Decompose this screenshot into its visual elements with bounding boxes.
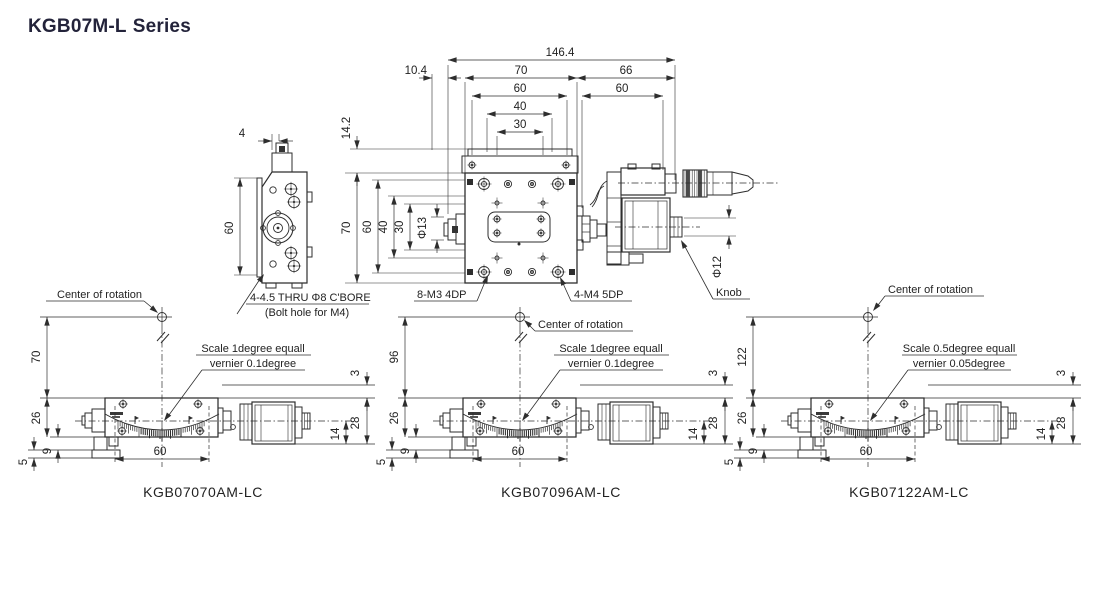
dim-arrow [44,317,49,326]
dim-arrow [1049,435,1054,444]
drawing-rect [607,172,621,264]
drawing-line [872,370,908,419]
dim-arrow [761,450,766,459]
dim-label: 28 [708,417,720,430]
screw-icon [828,403,830,405]
dim-arrow [407,204,412,213]
model-label: KGB07122AM-LC [849,484,969,500]
dim-label: 14.2 [341,117,353,139]
drawing-rect [929,411,937,430]
dim-label: Φ12 [712,256,724,278]
dim-label: 60 [514,83,527,95]
drawing-rect [266,283,276,288]
dim-arrow [31,458,36,467]
drawing-rect [686,170,689,197]
dim-arrow [413,428,418,437]
drawing-rect [443,413,450,428]
screw-icon [496,232,498,234]
goniometer-view-3: 12226953281460Center of rotationScale 0.… [724,284,1081,500]
gonio-drive-body [958,402,1001,444]
drawing-rect [92,409,105,432]
dim-label: 3 [708,370,720,376]
drawing-rect [625,201,667,249]
dim-arrow [701,435,706,444]
dim-label: 10.4 [405,65,428,77]
drawing-rect [82,416,85,425]
drawing-rect [279,146,285,152]
drawing-rect [240,404,252,440]
drawing-circle [518,243,521,246]
dim-arrow [726,236,731,245]
drawing-rect [109,437,118,446]
screw-icon [122,403,124,405]
dim-label: 9 [400,448,412,454]
dim-arrow [413,450,418,459]
drawing-rect [665,174,676,193]
dim-arrow [722,435,727,444]
dim-arrow [543,111,552,116]
drawing-rect [450,450,478,458]
dim-arrow [375,264,380,273]
drawing-rect [307,247,312,257]
dim-arrow [44,398,49,407]
catalog-drawing-page: KGB07M-LSeries 146.410.470666060403014.2… [0,0,1100,600]
dim-label: 122 [737,347,749,366]
dim-label: 70 [515,65,528,77]
callout-text: 4-4.5 THRU Φ8 C'BORE [250,292,371,304]
dim-arrow [558,93,567,98]
top-plan-view: 146.410.470666060403014.270604030Φ13Φ128… [341,47,778,301]
dim-arrow [389,441,394,450]
dim-arrow [448,57,457,62]
screw-icon [197,403,199,405]
dim-arrow [750,428,755,437]
dim-arrow [1070,376,1075,385]
drawing-rect [590,220,597,238]
dim-arrow [343,421,348,430]
scale-note: vernier 0.1degree [210,358,296,370]
tapped-hole-icon [531,183,532,184]
screw-icon [480,403,482,405]
logo-mark [470,416,478,418]
dim-arrow [364,435,369,444]
drawing-rect [85,413,92,428]
dim-arrow [654,93,663,98]
dim-label: 3 [1056,370,1068,376]
screw-icon [293,201,295,203]
dim-label: 26 [389,412,401,425]
scale-note: Scale 1degree equall [201,343,304,355]
dim-label: Φ13 [417,217,429,239]
callout-text: Knob [716,287,742,299]
drawing-rect [467,269,473,275]
drawing-rect [798,409,811,432]
screw-icon [479,430,481,432]
screw-icon [496,218,498,220]
drawing-rect [467,179,473,185]
screw-icon [565,164,567,166]
drawing-rect [788,416,791,425]
technical-drawing-canvas: 146.410.470666060403014.270604030Φ13Φ128… [0,0,1100,600]
dim-label: 60 [512,446,525,458]
screw-icon [905,430,907,432]
model-label: KGB07096AM-LC [501,484,621,500]
index-flag-icon [547,416,551,420]
goniometer-view-2: 9626953281460Center of rotationScale 1de… [376,307,733,500]
dim-arrow [666,57,675,62]
dim-label: 28 [350,417,362,430]
drawing-rect [798,450,826,458]
dim-arrow [1070,398,1075,407]
screw-icon [199,430,201,432]
index-flag-icon [895,416,899,420]
drawing-rect [576,408,581,433]
screw-icon [121,430,123,432]
gonio-drive-body [610,402,653,444]
drawing-rect [94,437,107,450]
drawing-rect [581,411,589,430]
platform-body [462,156,578,173]
drawing-circle [270,187,276,193]
dim-arrow [582,93,591,98]
drawing-rect [272,153,292,172]
drawing-line [524,370,560,419]
dim-arrow [263,138,272,143]
drawing-circle [270,261,276,267]
drawing-rect [255,405,292,441]
screw-icon [540,232,542,234]
drawing-rect [791,413,798,428]
dim-arrow [391,196,396,205]
dim-label: 26 [31,412,43,425]
drawing-rect [452,226,458,233]
dim-arrow [434,240,439,249]
screw-icon [471,164,473,166]
dim-arrow [402,317,407,326]
drawing-rect [440,416,443,425]
dim-arrow [1049,421,1054,430]
dim-arrow [389,458,394,467]
dim-arrow [558,456,567,461]
callout-text: (Bolt hole for M4) [265,307,349,319]
drawing-rect [307,192,312,202]
dim-label: 70 [31,351,43,364]
dim-arrow [679,239,688,249]
dim-arrow [577,75,586,80]
dim-label: 4 [239,128,246,140]
dim-arrow [364,398,369,407]
dim-arrow [666,75,675,80]
drawing-rect [629,254,643,263]
dim-arrow [473,456,482,461]
dim-label: 9 [748,448,760,454]
platform-edge [468,149,572,156]
dim-arrow [364,376,369,385]
dim-label: 5 [724,459,736,465]
dim-label: 14 [688,427,700,440]
tapped-hole-icon [507,271,508,272]
dim-label: 30 [394,221,406,234]
dim-arrow [472,93,481,98]
dim-arrow [761,428,766,437]
tapped-hole-icon [507,183,508,184]
gonio-drive-body [252,402,295,444]
dim-label: 40 [514,101,527,113]
center-of-rotation-label: Center of rotation [888,284,973,296]
drawing-rect [444,223,448,236]
scale-note: vernier 0.05degree [913,358,1005,370]
dim-label: 14 [1036,427,1048,440]
dim-arrow [354,173,359,182]
drawing-rect [223,411,231,430]
drawing-rect [946,404,958,440]
dim-arrow [237,178,242,187]
dim-arrow [44,428,49,437]
center-of-rotation-label: Center of rotation [57,289,142,301]
screw-icon [555,403,557,405]
side-body [262,172,307,283]
logo-mark [816,412,829,415]
dim-label: 60 [362,221,374,234]
dim-arrow [354,140,359,149]
dim-arrow [200,456,209,461]
goniometer-view-1: 7026953281460Center of rotationScale 1de… [18,289,375,500]
tapped-hole-icon [531,271,532,272]
dim-arrow [402,428,407,437]
dim-label: 96 [389,351,401,364]
dim-arrow [31,441,36,450]
dim-arrow [55,428,60,437]
dim-label: 60 [860,446,873,458]
dim-arrow [44,389,49,398]
dim-label: 146.4 [546,47,575,59]
dim-label: 60 [224,222,236,235]
dim-label: 5 [18,459,30,465]
dim-label: 9 [42,448,54,454]
dim-arrow [434,208,439,217]
drawing-circle [277,227,280,230]
index-flag-icon [135,416,139,420]
drawing-rect [92,450,120,458]
screw-icon [290,252,292,254]
drawing-rect [924,408,929,433]
dim-arrow [497,129,506,134]
drawing-rect [698,170,701,197]
drive-body [622,198,670,252]
dim-arrow [402,398,407,407]
screw-icon [557,430,559,432]
drawing-rect [707,172,732,195]
drawing-rect [452,437,465,450]
dim-arrow [722,376,727,385]
dim-arrow [737,458,742,467]
dim-arrow [568,75,577,80]
drawing-rect [292,283,302,288]
logo-mark [818,416,826,418]
dim-arrow [237,266,242,275]
dim-label: 40 [378,221,390,234]
dim-arrow [737,441,742,450]
drawing-rect [613,405,650,441]
logo-mark [112,416,120,418]
drawing-rect [295,407,302,438]
scale-note: Scale 0.5degree equall [903,343,1016,355]
dim-arrow [391,249,396,258]
drawing-rect [450,409,463,432]
screw-icon [827,430,829,432]
drawing-rect [569,179,575,185]
drawing-rect [800,437,813,450]
dim-label: 28 [1056,417,1068,430]
index-flag-icon [841,416,845,420]
drawing-line [166,370,202,419]
dim-arrow [750,398,755,407]
logo-mark [468,412,481,415]
dim-arrow [487,111,496,116]
screw-icon [293,265,295,267]
drawing-rect [653,407,660,438]
center-of-rotation-label: Center of rotation [538,319,623,331]
dim-arrow [465,75,474,80]
mount-plate [257,178,262,277]
cable [590,186,604,205]
dim-arrow [1070,435,1075,444]
drawing-rect [467,437,476,446]
drawing-rect [582,216,590,242]
cable [592,181,607,207]
dim-arrow [821,456,830,461]
callout-text: 4-M4 5DP [574,289,624,301]
dim-label: 3 [350,370,362,376]
index-flag-icon [189,416,193,420]
screw-icon [290,188,292,190]
dim-arrow [726,209,731,218]
dim-arrow [906,456,915,461]
drawing-rect [598,404,610,440]
drawing-rect [218,408,223,433]
index-flag-icon [493,416,497,420]
dim-arrow [534,129,543,134]
logo-mark [110,412,123,415]
drawing-line [683,243,713,299]
drawing-rect [1001,407,1008,438]
dim-label: 60 [616,83,629,95]
dim-label: 14 [330,427,342,440]
dim-arrow [407,241,412,250]
dim-label: 70 [341,222,353,235]
dim-label: 5 [376,459,388,465]
dim-arrow [722,398,727,407]
model-label: KGB07070AM-LC [143,484,263,500]
micrometer-head [621,168,665,195]
screw-icon [540,218,542,220]
dim-arrow [750,389,755,398]
dim-arrow [115,456,124,461]
dim-label: 60 [154,446,167,458]
scale-note: Scale 1degree equall [559,343,662,355]
dim-label: 26 [737,412,749,425]
callout-text: 8-M3 4DP [417,289,467,301]
dim-arrow [375,180,380,189]
dim-arrow [701,421,706,430]
dim-arrow [402,389,407,398]
scale-note: vernier 0.1degree [568,358,654,370]
drawing-rect [961,405,998,441]
dim-arrow [343,435,348,444]
drawing-rect [607,252,629,265]
drawing-rect [815,437,824,446]
dim-arrow [448,75,457,80]
screw-icon [903,403,905,405]
dim-arrow [750,317,755,326]
dim-arrow [55,450,60,459]
dim-label: 30 [514,119,527,131]
drawing-rect [569,269,575,275]
drawing-rect [597,224,606,236]
dim-arrow [354,274,359,283]
dim-label: 66 [620,65,633,77]
